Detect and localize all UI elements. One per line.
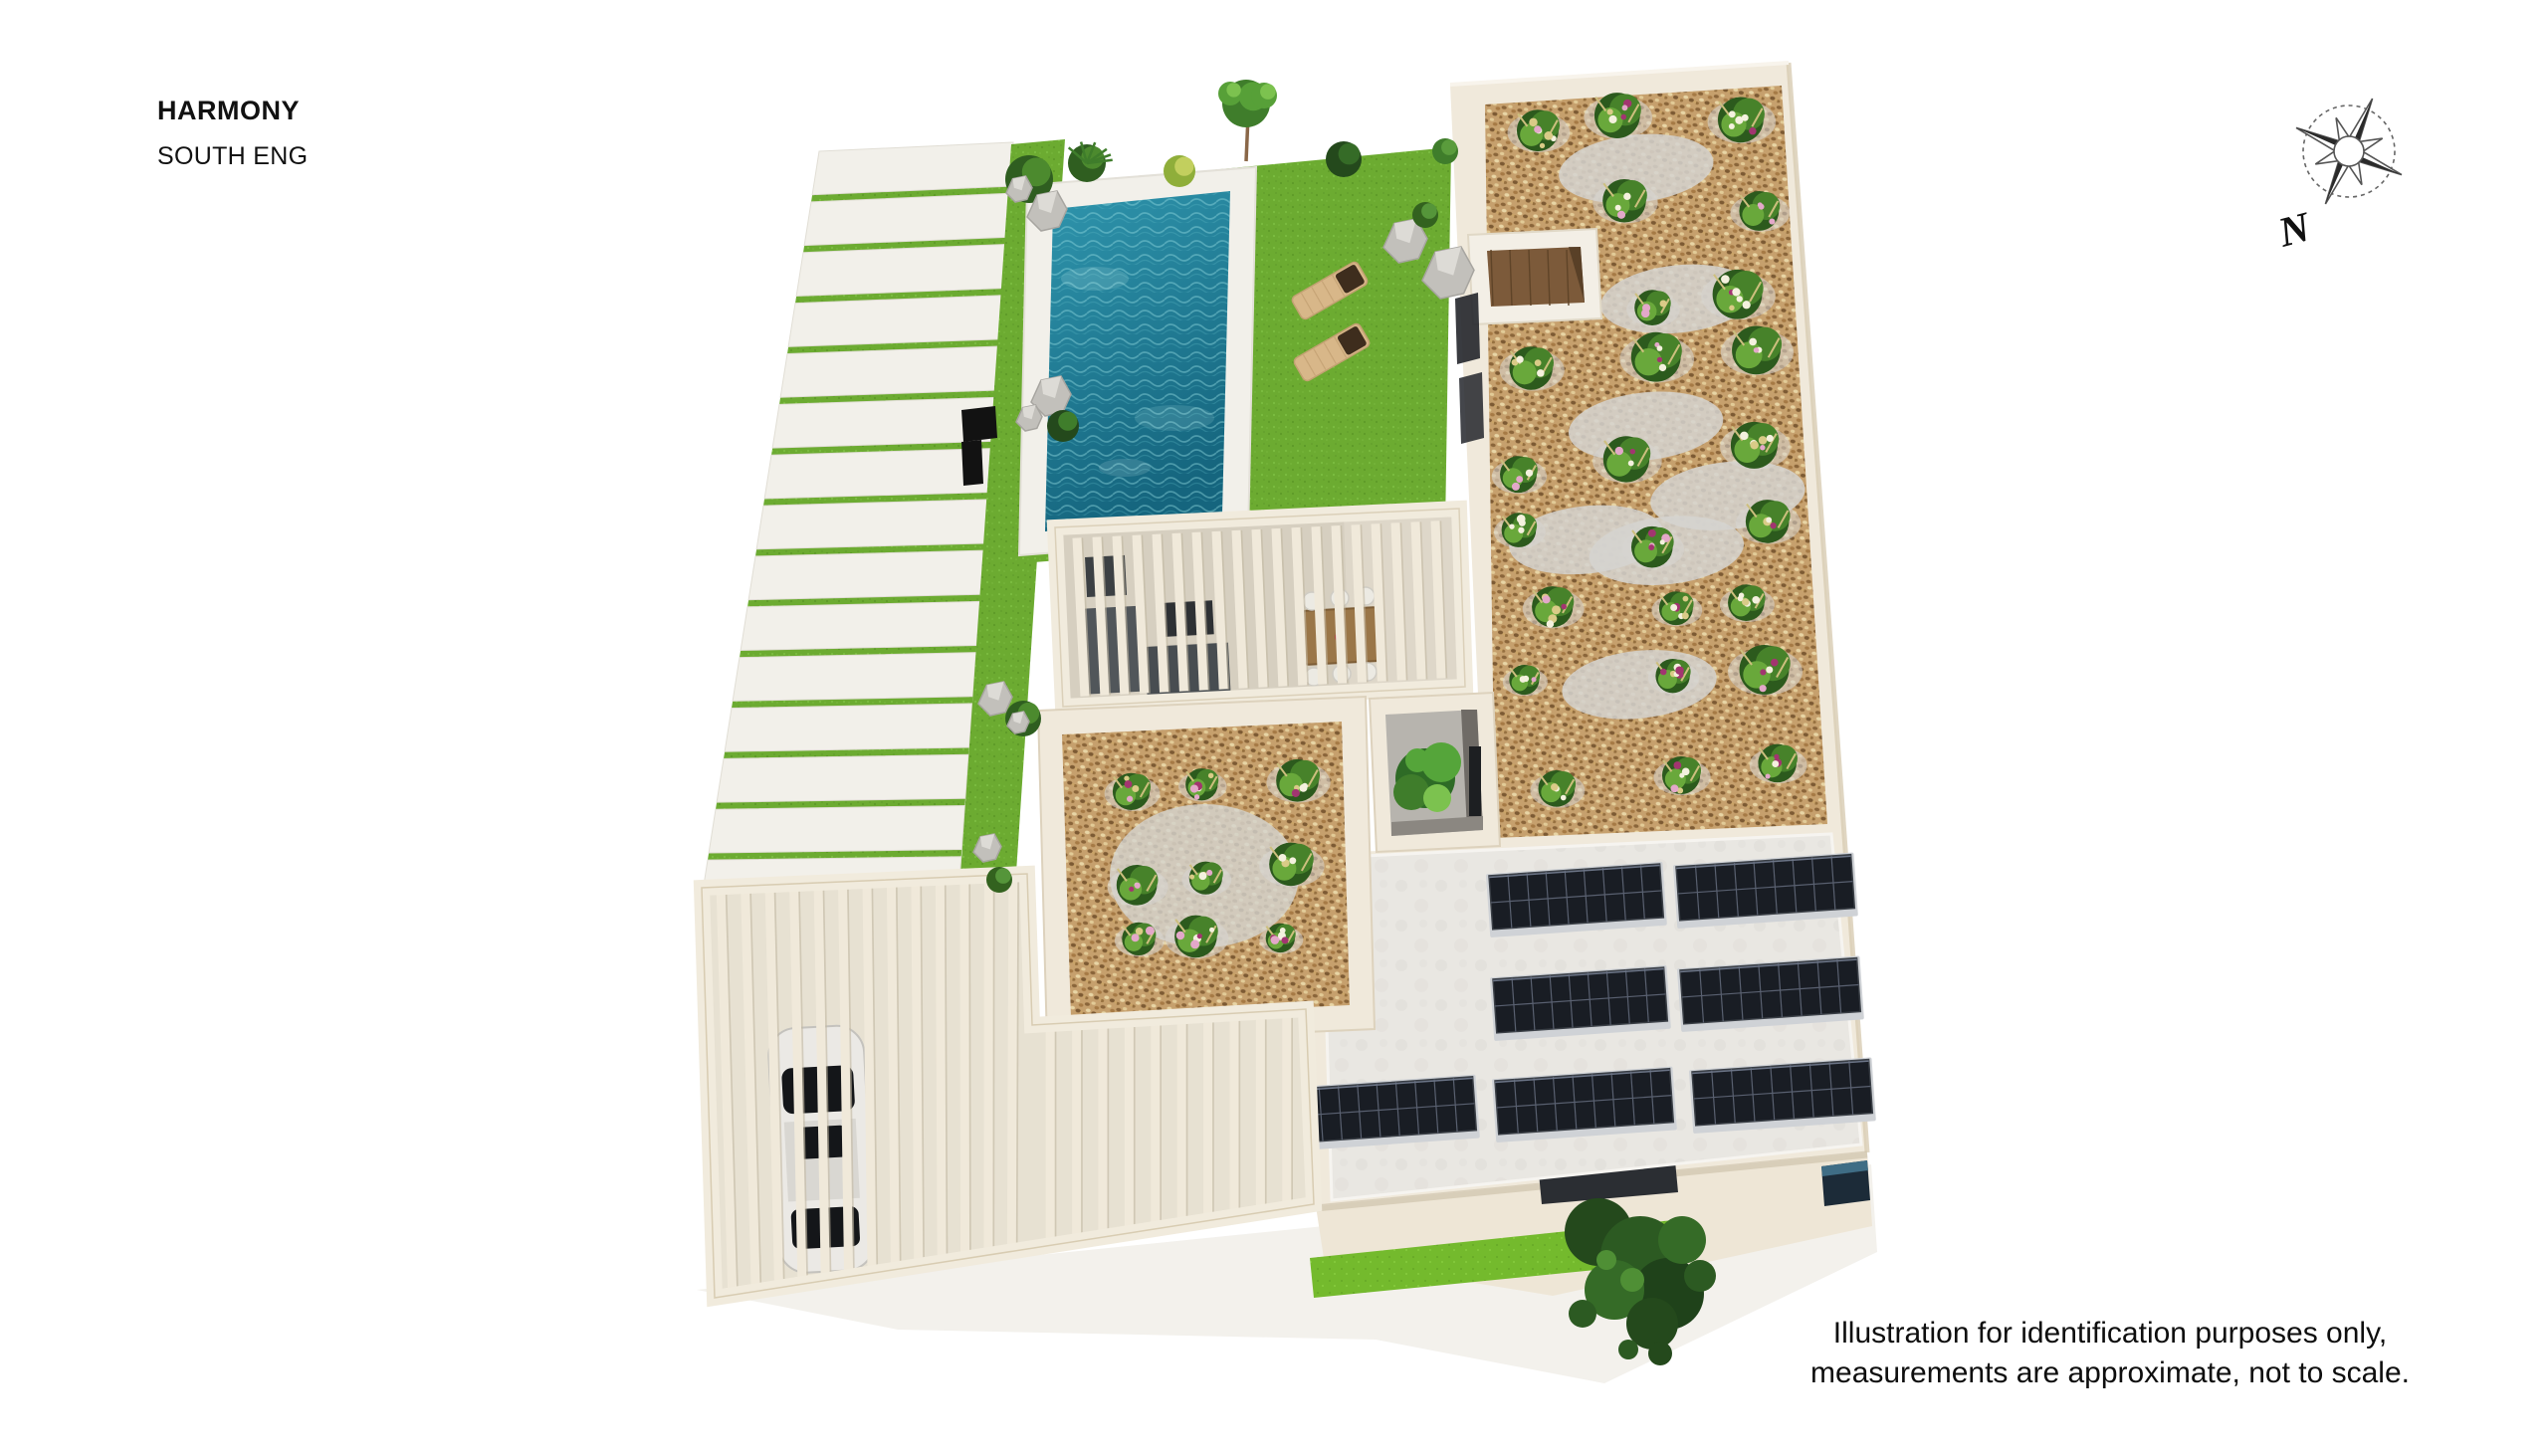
solar-panel [1689,1057,1876,1134]
solar-panel [1486,862,1667,937]
courtyard-lightwell [1370,693,1500,852]
page: HARMONY SOUTH ENG [0,0,2548,1456]
compass-rose-icon: N [2272,75,2425,256]
disclaimer-line2: measurements are approximate, not to sca… [1732,1353,2488,1393]
compass-north-label: N [2273,204,2317,257]
center-gravel-garden [1038,697,1375,1043]
disclaimer: Illustration for identification purposes… [1732,1314,2488,1393]
solar-panel [1673,853,1858,930]
disclaimer-line1: Illustration for identification purposes… [1732,1314,2488,1353]
solar-panel [1677,955,1864,1032]
solar-roof [1297,834,1876,1200]
site-plan-render: N [0,0,2548,1456]
solar-panel [1492,1067,1677,1144]
pergola-terrace [1055,509,1465,707]
solar-panel [1297,1075,1480,1150]
solar-panel [1490,965,1671,1041]
